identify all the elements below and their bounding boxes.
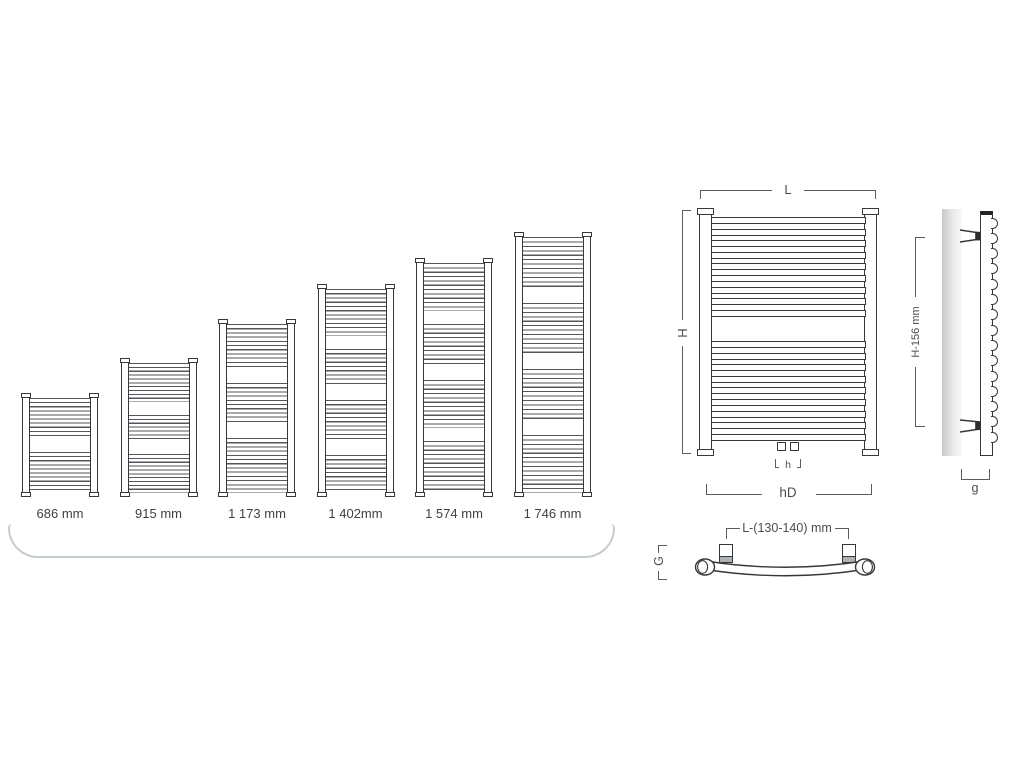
front-tube	[711, 229, 866, 236]
dim-l-line-left	[700, 190, 772, 191]
front-rail-cap	[862, 449, 879, 456]
tube-end	[991, 233, 998, 244]
size-label: 1 402mm	[311, 506, 401, 521]
dim-h-line-bottom	[682, 346, 683, 454]
rail-left	[121, 360, 129, 495]
front-rail-cap	[862, 208, 879, 215]
tube-group	[326, 349, 386, 387]
rail-left	[219, 321, 227, 495]
dim-l-tick-right	[875, 190, 876, 199]
rail-left	[22, 395, 30, 495]
front-tube	[711, 387, 866, 394]
valve-stub-right	[790, 442, 799, 451]
front-tube	[711, 422, 866, 429]
rail-cap	[89, 492, 99, 497]
rail-cap	[483, 258, 493, 263]
rail-left	[318, 286, 326, 495]
dim-g-label: g	[965, 480, 985, 496]
tube-group	[326, 400, 386, 442]
size-label: 915 mm	[114, 506, 204, 521]
tube-group	[424, 380, 484, 428]
rail-cap	[385, 284, 395, 289]
dim-hd-line-right	[816, 494, 872, 495]
front-tube	[711, 411, 866, 418]
tube-group	[326, 455, 386, 493]
dim-h156-line-top	[915, 237, 916, 297]
tube-group	[424, 324, 484, 367]
rail-left	[416, 260, 424, 495]
radiator-1173	[219, 319, 295, 497]
tube-group	[129, 363, 189, 402]
tube-group	[30, 452, 90, 493]
rail-cap	[483, 492, 493, 497]
tube-group	[227, 438, 287, 493]
rail-right	[484, 260, 492, 495]
dim-hsmall-corner-right	[797, 459, 801, 468]
dim-l-tick-left	[700, 190, 701, 199]
rail-right	[583, 234, 591, 495]
rail-cap	[582, 492, 592, 497]
mounting-arms	[960, 226, 982, 438]
dim-hsmall-corner-left	[775, 459, 779, 468]
dim-h156-label: H-156 mm	[908, 302, 924, 362]
size-label: 686 mm	[15, 506, 105, 521]
rail-cap	[89, 393, 99, 398]
tube-end	[991, 325, 998, 336]
tube-end	[991, 263, 998, 274]
tube-group	[523, 369, 583, 422]
front-tube	[711, 263, 866, 270]
front-tube	[711, 275, 866, 282]
tube-group	[424, 263, 484, 311]
tube-group	[129, 454, 189, 493]
valve-stub-left	[777, 442, 786, 451]
tube-group	[30, 398, 90, 439]
dim-h156-line-bottom	[915, 367, 916, 427]
front-tube	[711, 287, 866, 294]
tube-end	[991, 432, 998, 443]
rail-right	[386, 286, 394, 495]
front-tube	[711, 341, 866, 348]
tube-end	[991, 248, 998, 259]
rail-right	[90, 395, 98, 495]
front-tube	[711, 353, 866, 360]
dim-lb-tick-left	[726, 528, 727, 539]
tube-end	[991, 355, 998, 366]
rail-cap	[582, 232, 592, 237]
tube-end	[991, 371, 998, 382]
tray-outline	[8, 524, 615, 558]
size-chart: 686 mm915 mm1 173 mm1 402mm1 574 mm1 746…	[0, 0, 640, 768]
rail-left	[515, 234, 523, 495]
radiator-686	[22, 393, 98, 497]
front-tube	[711, 364, 866, 371]
dim-l-line-right	[804, 190, 876, 191]
tube-end	[991, 294, 998, 305]
dim-l-label: L	[776, 182, 800, 198]
dim-lb-label: L-(130-140) mm	[737, 520, 837, 536]
tube-group	[129, 415, 189, 442]
tube-group	[523, 435, 583, 493]
front-tube	[711, 310, 866, 317]
front-tube	[711, 399, 866, 406]
front-tube	[711, 434, 866, 441]
dim-h156-tick-top	[915, 237, 925, 238]
tube-end	[991, 279, 998, 290]
radiator-915	[121, 358, 197, 497]
rail-cap	[286, 492, 296, 497]
radiator-dimension-diagram: 686 mm915 mm1 173 mm1 402mm1 574 mm1 746…	[0, 0, 1024, 768]
front-tube	[711, 252, 866, 259]
rail-right	[189, 360, 197, 495]
radiator-1402	[318, 284, 394, 497]
tube-group	[326, 289, 386, 336]
tube-end	[991, 340, 998, 351]
front-tube	[711, 376, 866, 383]
dim-h-label: H	[675, 321, 691, 345]
wall	[942, 209, 962, 456]
front-tube	[711, 217, 866, 224]
tube-group	[523, 303, 583, 356]
dim-lb-tick-right	[848, 528, 849, 539]
radiator-1746	[515, 232, 591, 497]
front-rail-cap	[697, 449, 714, 456]
tube-end	[991, 386, 998, 397]
tube-group	[523, 237, 583, 290]
dim-h-line-top	[682, 210, 683, 320]
rail-right	[287, 321, 295, 495]
front-tube	[711, 240, 866, 247]
size-label: 1 746 mm	[508, 506, 598, 521]
tube-group	[227, 324, 287, 370]
radiator-1574	[416, 258, 492, 497]
dim-h156-tick-bottom	[915, 426, 925, 427]
size-label: 1 574 mm	[409, 506, 499, 521]
size-label: 1 173 mm	[212, 506, 302, 521]
front-tube	[711, 298, 866, 305]
dim-gd-label: G	[651, 549, 667, 573]
curved-tube	[694, 557, 876, 585]
tube-end	[991, 416, 998, 427]
rail-cap	[188, 492, 198, 497]
rail-cap	[385, 492, 395, 497]
rail-cap	[286, 319, 296, 324]
dim-hd-line-left	[706, 494, 762, 495]
dim-lb-line-right	[835, 528, 849, 529]
rail-cap	[188, 358, 198, 363]
tube-end	[991, 309, 998, 320]
front-rail-cap	[697, 208, 714, 215]
tube-end	[991, 218, 998, 229]
tube-group	[227, 383, 287, 425]
tube-end	[991, 401, 998, 412]
dim-hd-label: hD	[762, 485, 814, 501]
dim-hsmall-label: h	[780, 457, 796, 473]
tube-group	[424, 441, 484, 493]
